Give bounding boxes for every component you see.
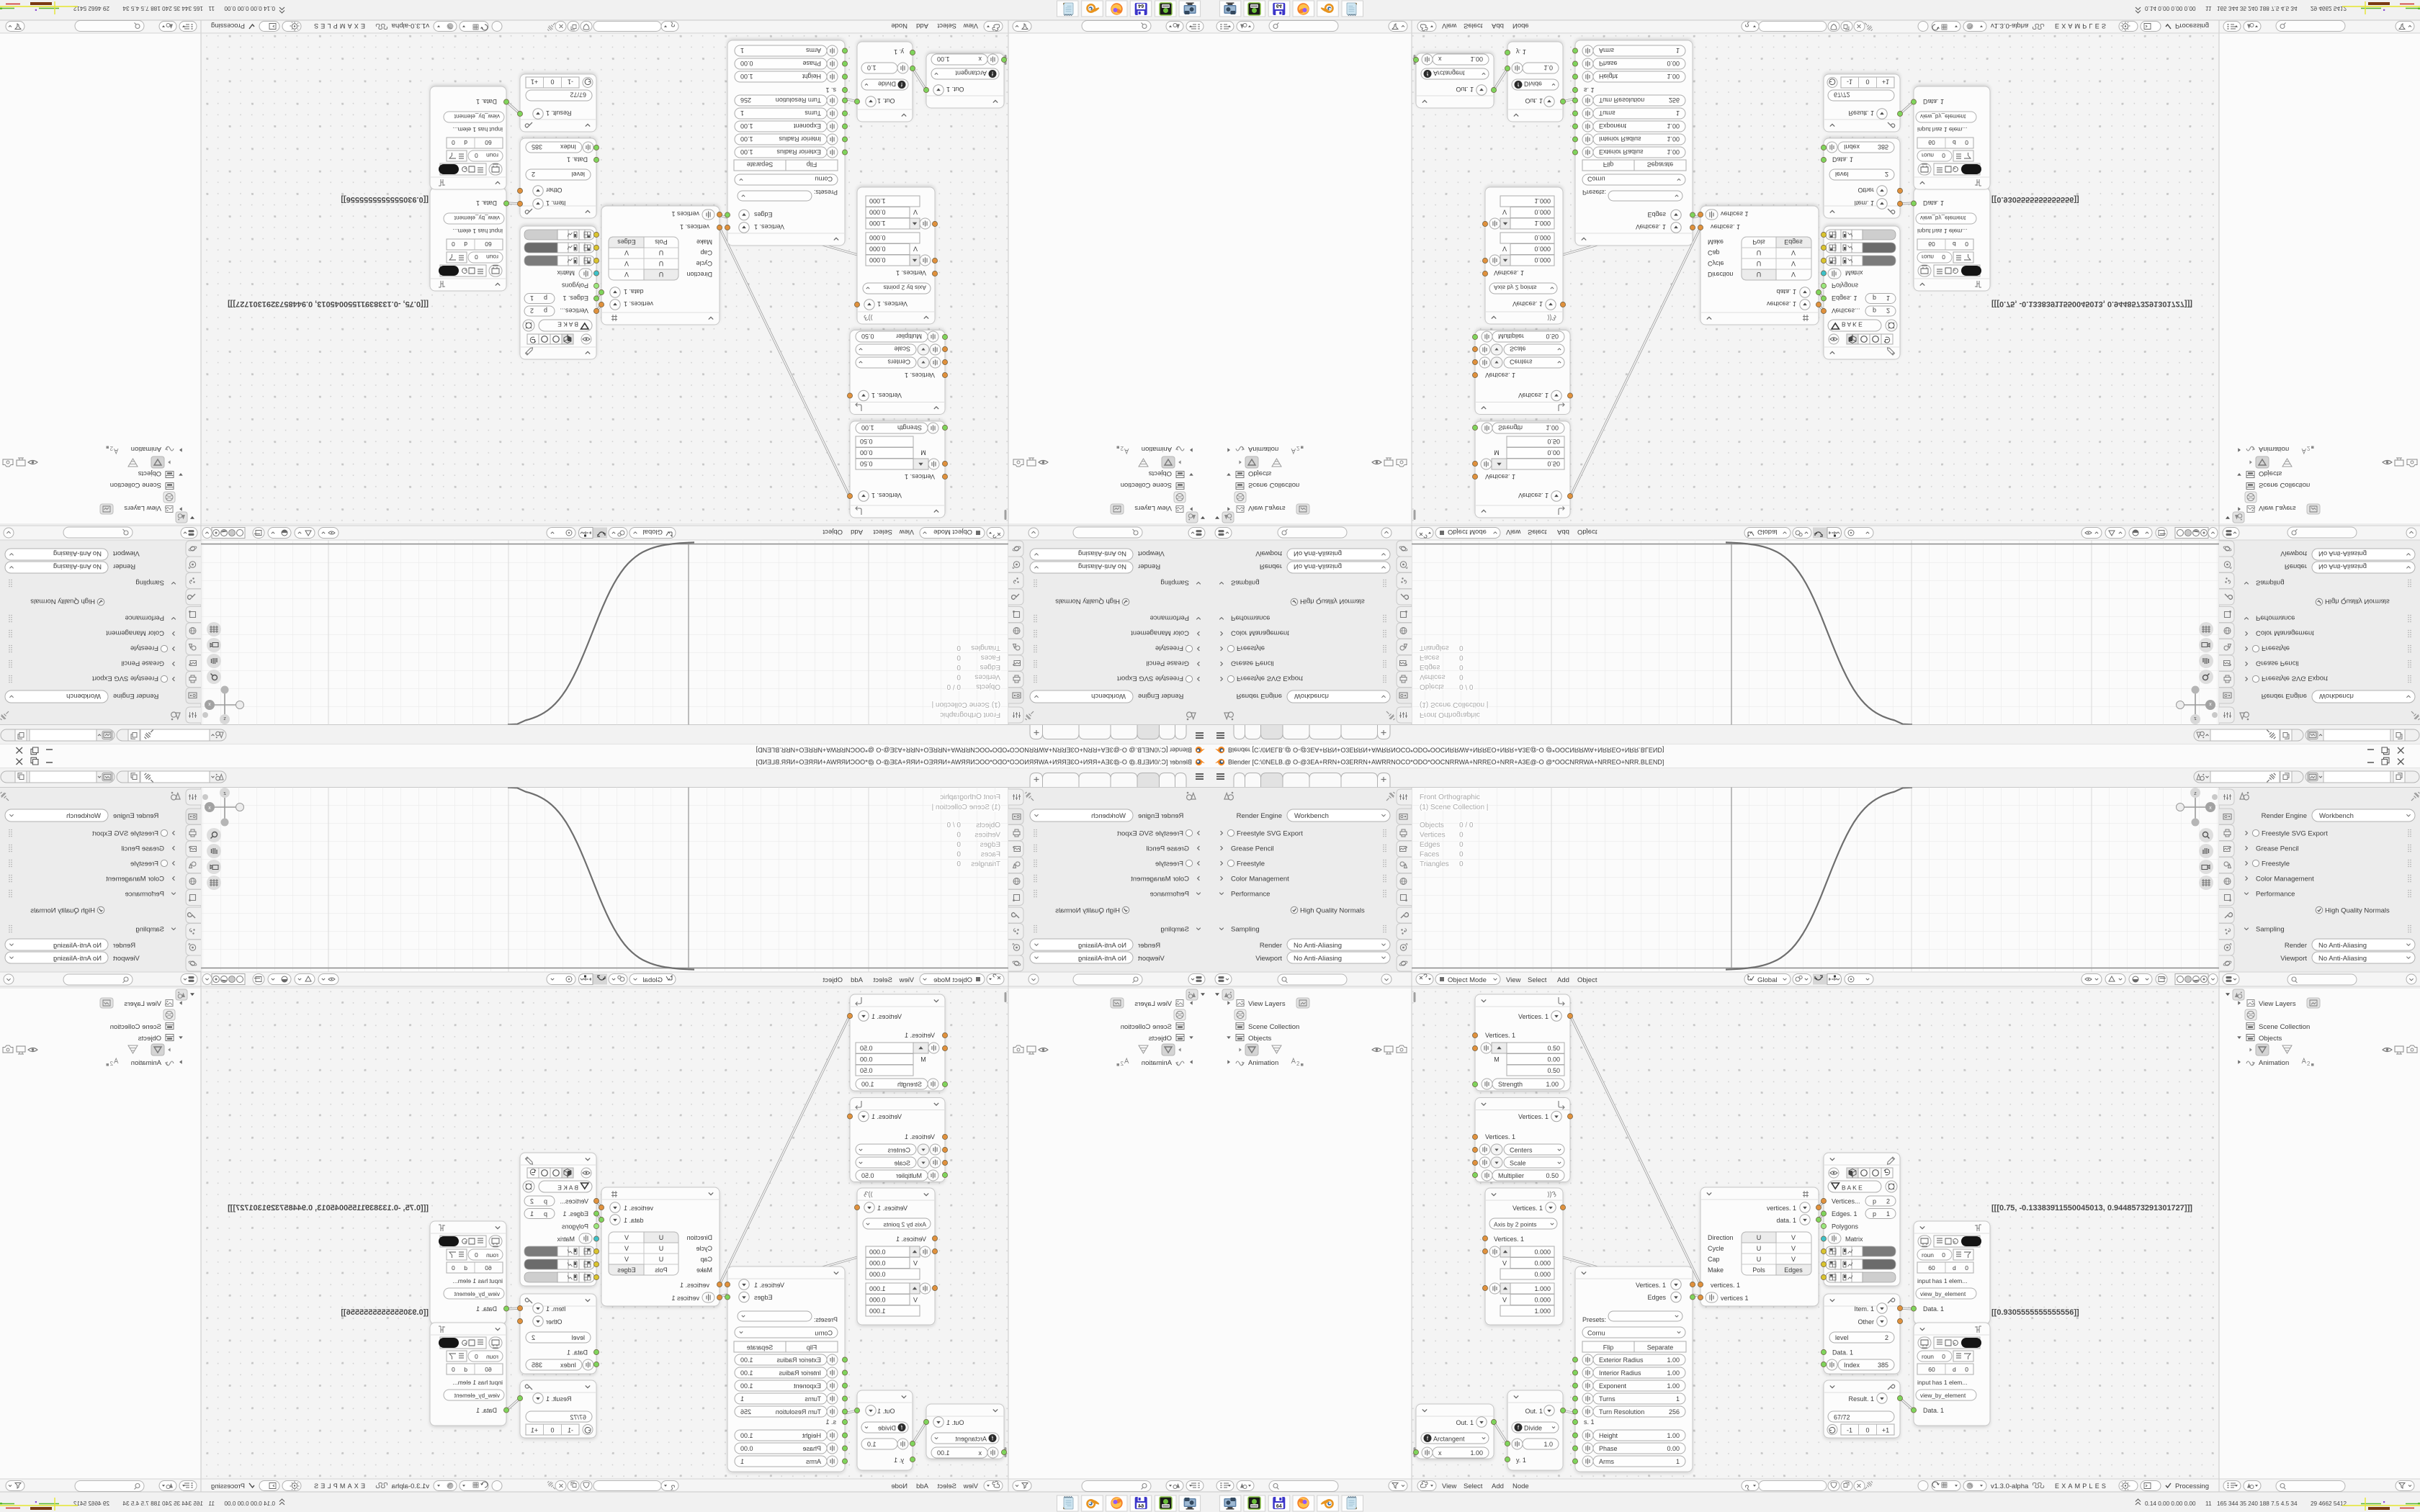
svg-text:Freestyle SVG Export: Freestyle SVG Export — [1237, 830, 1303, 838]
svg-text:Edges: Edges — [1420, 841, 1440, 849]
svg-text:0.50: 0.50 — [1547, 1045, 1560, 1052]
svg-text:1.000: 1.000 — [1534, 1308, 1551, 1315]
svg-text:Object Mode: Object Mode — [1448, 976, 1487, 984]
svg-text:level: level — [1835, 1334, 1849, 1341]
svg-text:Matrix: Matrix — [1845, 1236, 1863, 1243]
svg-text:Vertices. 1: Vertices. 1 — [1485, 1133, 1515, 1140]
svg-text:Workbench: Workbench — [1294, 812, 1329, 820]
svg-text:Viewport: Viewport — [1255, 955, 1282, 963]
svg-text:Performance: Performance — [2256, 891, 2295, 899]
svg-text:Exterior Radius: Exterior Radius — [1599, 1356, 1644, 1364]
svg-text:Render: Render — [1260, 942, 1282, 950]
svg-text:0.000: 0.000 — [1534, 1248, 1551, 1256]
svg-text:Node: Node — [1512, 1482, 1529, 1490]
svg-text:2: 2 — [1296, 1061, 1300, 1067]
svg-text:Turns: Turns — [1599, 1395, 1615, 1403]
svg-text:0: 0 — [1965, 1264, 1968, 1272]
svg-text:High Quality Normals: High Quality Normals — [1300, 907, 1365, 915]
svg-text:d: d — [1953, 1366, 1956, 1373]
svg-text:Result. 1: Result. 1 — [1848, 1395, 1874, 1403]
svg-text:0: 0 — [1965, 1366, 1968, 1373]
svg-text:67/72: 67/72 — [1834, 1414, 1850, 1421]
svg-text:0.000: 0.000 — [1534, 1260, 1551, 1267]
svg-text:V: V — [1502, 1297, 1507, 1304]
svg-text:U: U — [1757, 1245, 1762, 1252]
svg-text:Vertices. 1: Vertices. 1 — [1518, 1013, 1549, 1020]
svg-text:29 4662 5412: 29 4662 5412 — [2311, 1500, 2347, 1507]
svg-text:Render Engine: Render Engine — [2262, 812, 2307, 820]
svg-text:Height: Height — [1599, 1432, 1618, 1439]
svg-text:V: V — [1791, 1256, 1796, 1263]
svg-text:V: V — [1791, 1245, 1796, 1252]
svg-text:Color Management: Color Management — [1231, 876, 1289, 883]
svg-text:vertices 1: vertices 1 — [1721, 1295, 1749, 1302]
svg-text:Presets:: Presets: — [1582, 1316, 1606, 1323]
svg-text:Freestyle: Freestyle — [2262, 860, 2290, 868]
svg-text:V: V — [1791, 1234, 1796, 1241]
svg-text:Phase: Phase — [1599, 1445, 1618, 1452]
svg-text:0: 0 — [1865, 1427, 1869, 1434]
svg-text:Add: Add — [1492, 1482, 1504, 1490]
svg-text:Vertices. 1: Vertices. 1 — [1494, 1236, 1524, 1243]
svg-text:0: 0 — [1459, 860, 1464, 868]
svg-text:60: 60 — [1928, 1264, 1935, 1272]
svg-text:Front Orthographic: Front Orthographic — [1420, 793, 1480, 801]
svg-text:Divide: Divide — [1524, 1425, 1542, 1432]
svg-text:vertices. 1: vertices. 1 — [1767, 1205, 1796, 1212]
svg-text:Scale: Scale — [1510, 1160, 1526, 1167]
svg-text:p: p — [1873, 1210, 1876, 1218]
svg-text:view_by_element: view_by_element — [1920, 1291, 1966, 1297]
svg-text:View: View — [1442, 1482, 1457, 1490]
svg-text:0.00: 0.00 — [1547, 1056, 1560, 1063]
svg-text:256: 256 — [1669, 1408, 1680, 1416]
svg-text:0: 0 — [1459, 832, 1464, 840]
svg-text:input has 1 elem...: input has 1 elem... — [1917, 1277, 1967, 1284]
svg-text:Out. 1: Out. 1 — [1525, 1408, 1543, 1415]
svg-text:Viewport: Viewport — [2280, 955, 2307, 963]
svg-text:Cornu: Cornu — [1587, 1330, 1605, 1337]
svg-text:Out. 1: Out. 1 — [1456, 1419, 1474, 1426]
svg-text:Turn Resolution: Turn Resolution — [1599, 1408, 1644, 1416]
svg-text:Cap: Cap — [1708, 1256, 1720, 1263]
svg-text:U: U — [1757, 1234, 1762, 1241]
svg-text:No Anti-Aliasing: No Anti-Aliasing — [2318, 942, 2367, 950]
svg-text:Scene Collection: Scene Collection — [1248, 1023, 1299, 1031]
svg-text:1.000: 1.000 — [1534, 1285, 1551, 1292]
svg-text:U: U — [1757, 1256, 1762, 1263]
svg-text:1.00: 1.00 — [1667, 1369, 1680, 1377]
svg-text:Cycle: Cycle — [1708, 1245, 1724, 1252]
svg-text:Blender [C:\0NELB.@ O-@3EA+RRN: Blender [C:\0NELB.@ O-@3EA+RRN+O3ERRN+AW… — [1228, 759, 1664, 766]
svg-text:Axis by 2 points: Axis by 2 points — [1494, 1221, 1537, 1228]
svg-text:Interior Radius: Interior Radius — [1599, 1369, 1641, 1377]
svg-text:Global: Global — [1757, 976, 1777, 984]
svg-text:0.000: 0.000 — [1534, 1271, 1551, 1278]
svg-text:0.14 0.00 0.00 0.00: 0.14 0.00 0.00 0.00 — [2145, 1500, 2196, 1507]
svg-text:Faces: Faces — [1420, 851, 1439, 859]
svg-text:0: 0 — [1942, 1353, 1945, 1360]
svg-text:[[0.9305555555555556]]: [[0.9305555555555556]] — [1991, 1308, 2079, 1317]
svg-text:View: View — [1506, 976, 1521, 984]
svg-text:y. 1: y. 1 — [1516, 1457, 1526, 1464]
svg-text:165 344 35 240 188 7.5 4.5: 165 344 35 240 188 7.5 4.5 34 — [2217, 1500, 2298, 1507]
svg-text:1.00: 1.00 — [1667, 1382, 1680, 1390]
svg-text:0: 0 — [1459, 851, 1464, 859]
svg-text:Data. 1: Data. 1 — [1832, 1349, 1853, 1356]
svg-text:(1) Scene Collection |: (1) Scene Collection | — [1420, 804, 1488, 811]
svg-text:Item. 1: Item. 1 — [1854, 1305, 1874, 1313]
svg-text:Exponent: Exponent — [1599, 1382, 1627, 1390]
svg-text:Edges. 1: Edges. 1 — [1832, 1210, 1857, 1218]
svg-text:1.00: 1.00 — [1470, 1449, 1483, 1457]
svg-text:Triangles: Triangles — [1420, 860, 1449, 868]
svg-text:V: V — [1502, 1260, 1507, 1267]
svg-text:Freestyle SVG Export: Freestyle SVG Export — [2262, 830, 2328, 838]
svg-text:Performance: Performance — [1231, 891, 1270, 899]
svg-text:385: 385 — [1878, 1362, 1888, 1369]
svg-text:Select: Select — [1528, 976, 1547, 984]
svg-text:1: 1 — [1676, 1458, 1680, 1465]
svg-text:Arms: Arms — [1599, 1458, 1614, 1465]
svg-text:11: 11 — [2205, 1500, 2212, 1507]
svg-text:Separate: Separate — [1647, 1344, 1674, 1351]
svg-text:v1.3.0-alpha: v1.3.0-alpha — [1991, 1482, 2029, 1490]
svg-text:1: 1 — [1886, 1210, 1890, 1218]
svg-text:Color Management: Color Management — [2256, 876, 2314, 883]
svg-text:View Layers: View Layers — [2259, 1000, 2296, 1008]
svg-text:Edges: Edges — [1647, 1294, 1666, 1301]
svg-text:Other: Other — [1857, 1318, 1874, 1326]
svg-text:Select: Select — [1464, 1482, 1483, 1490]
svg-text:Render Engine: Render Engine — [1237, 812, 1282, 820]
svg-text:No Anti-Aliasing: No Anti-Aliasing — [1294, 955, 1342, 963]
svg-text:Vertices...: Vertices... — [1832, 1198, 1860, 1205]
svg-text:1.00: 1.00 — [1546, 1081, 1559, 1088]
svg-text:High Quality Normals: High Quality Normals — [2325, 907, 2390, 915]
svg-text:Vertices. 1: Vertices. 1 — [1485, 1032, 1515, 1039]
svg-text:-1: -1 — [1847, 1427, 1852, 1434]
svg-text:2: 2 — [2307, 1061, 2311, 1067]
svg-text:1.00: 1.00 — [1667, 1432, 1680, 1439]
svg-text:Sampling: Sampling — [1231, 926, 1260, 934]
svg-text:data. 1: data. 1 — [1776, 1217, 1796, 1224]
svg-text:B A K E: B A K E — [1842, 1184, 1863, 1192]
svg-text:Sampling: Sampling — [2256, 926, 2285, 934]
svg-text:Objects: Objects — [1420, 822, 1444, 829]
svg-text:Strength: Strength — [1498, 1081, 1523, 1088]
svg-text:view_by_element: view_by_element — [1920, 1392, 1966, 1399]
svg-text:x: x — [1438, 1449, 1442, 1457]
svg-text:Multiplier: Multiplier — [1498, 1172, 1524, 1179]
svg-text:1.00: 1.00 — [1667, 1356, 1680, 1364]
svg-text:1: 1 — [1676, 1395, 1680, 1403]
svg-text:No Anti-Aliasing: No Anti-Aliasing — [1294, 942, 1342, 950]
svg-text:Vertices. 1: Vertices. 1 — [1512, 1205, 1543, 1212]
svg-text:Scene Collection: Scene Collection — [2259, 1023, 2310, 1031]
svg-text:Workbench: Workbench — [2319, 812, 2354, 820]
svg-text:Freestyle: Freestyle — [1237, 860, 1265, 868]
svg-text:Vertices. 1: Vertices. 1 — [1636, 1282, 1666, 1289]
svg-text:EXAMPLES: EXAMPLES — [2055, 1482, 2108, 1490]
svg-text:Pols: Pols — [1752, 1266, 1765, 1274]
svg-text:vertices. 1: vertices. 1 — [1711, 1282, 1740, 1289]
svg-text:Grease Pencil: Grease Pencil — [1231, 845, 1274, 853]
svg-text:Flip: Flip — [1603, 1344, 1614, 1351]
svg-text:M: M — [1494, 1056, 1500, 1063]
svg-text:Render: Render — [2285, 942, 2307, 950]
svg-text:Object: Object — [1577, 976, 1597, 984]
svg-text:roun: roun — [1922, 1353, 1934, 1360]
svg-text:Polygons: Polygons — [1832, 1223, 1859, 1230]
svg-text:Centers: Centers — [1510, 1147, 1533, 1154]
svg-text:0.50: 0.50 — [1547, 1067, 1560, 1074]
svg-text:Edges: Edges — [1784, 1266, 1803, 1274]
svg-text:View Layers: View Layers — [1248, 1000, 1286, 1008]
svg-text:2: 2 — [1885, 1334, 1888, 1341]
svg-text:0: 0 — [1942, 1251, 1945, 1259]
svg-text:1.0: 1.0 — [1543, 1441, 1553, 1448]
svg-text:0: 0 — [1459, 841, 1464, 849]
svg-text:Index: Index — [1844, 1362, 1860, 1369]
svg-text:Objects: Objects — [2259, 1035, 2282, 1043]
svg-text:p: p — [1873, 1198, 1876, 1205]
svg-text:Make: Make — [1708, 1266, 1724, 1274]
svg-text:s. 1: s. 1 — [1584, 1418, 1595, 1426]
svg-text:0.000: 0.000 — [1534, 1297, 1551, 1304]
svg-text:0 / 0: 0 / 0 — [1459, 822, 1474, 829]
svg-text:z: z — [2194, 791, 2197, 796]
svg-text:[[[0.75, -0.13383911550045013,: [[[0.75, -0.13383911550045013, 0.9448573… — [1991, 1204, 2192, 1212]
svg-text:x: x — [2209, 806, 2212, 811]
svg-text:input has 1 elem...: input has 1 elem... — [1917, 1379, 1967, 1386]
svg-text:0.00: 0.00 — [1667, 1445, 1680, 1452]
svg-text:Vertices. 1: Vertices. 1 — [1518, 1113, 1549, 1120]
svg-text:Data. 1: Data. 1 — [1923, 1305, 1944, 1313]
svg-text:+1: +1 — [1882, 1427, 1889, 1434]
svg-text:Processing: Processing — [2175, 1482, 2209, 1490]
svg-text:Direction: Direction — [1708, 1234, 1734, 1241]
svg-text:2: 2 — [1886, 1198, 1890, 1205]
svg-text:Animation: Animation — [1248, 1059, 1278, 1067]
svg-text:64: 64 — [1276, 1504, 1282, 1509]
svg-text:Vertices: Vertices — [1420, 832, 1446, 840]
svg-text:Grease Pencil: Grease Pencil — [2256, 845, 2299, 853]
svg-text:No Anti-Aliasing: No Anti-Aliasing — [2318, 955, 2367, 963]
svg-text:Arctangent: Arctangent — [1433, 1436, 1465, 1443]
svg-text:roun: roun — [1922, 1251, 1934, 1259]
svg-text:d: d — [1953, 1264, 1956, 1272]
svg-text:Objects: Objects — [1248, 1035, 1271, 1043]
svg-text:Add: Add — [1557, 976, 1569, 984]
svg-text:Data. 1: Data. 1 — [1923, 1407, 1944, 1414]
svg-text:60: 60 — [1928, 1366, 1935, 1373]
svg-text:0.50: 0.50 — [1546, 1172, 1559, 1179]
svg-text:Animation: Animation — [2259, 1059, 2289, 1067]
